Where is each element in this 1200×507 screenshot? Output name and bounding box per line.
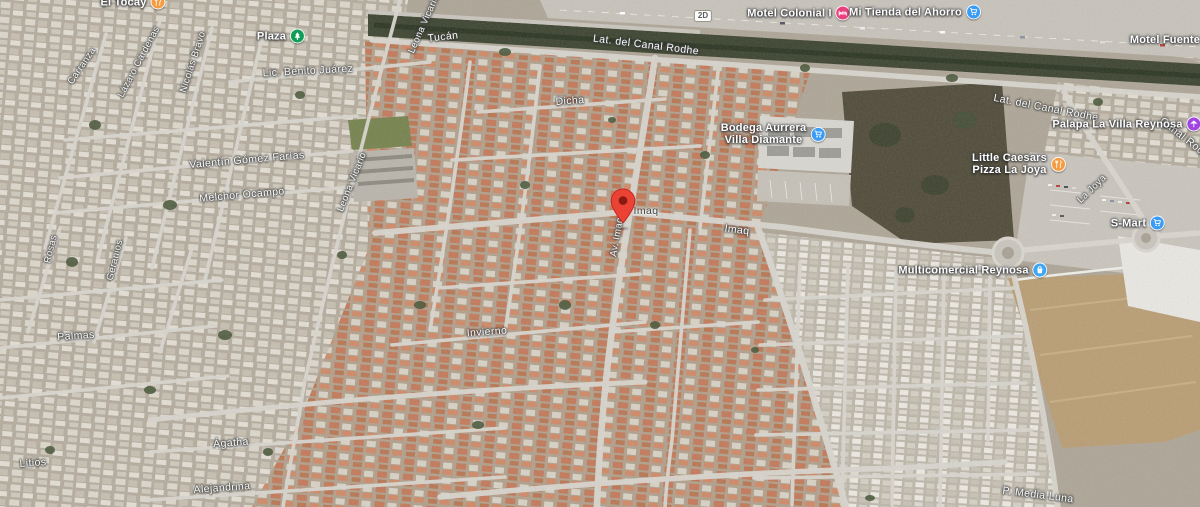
poi-plaza[interactable]: Plaza xyxy=(257,29,305,44)
poi-label: Plaza xyxy=(257,30,286,42)
poi-label-line1: Little Caesars xyxy=(972,152,1047,164)
poi-label: Multicomercial Reynosa xyxy=(898,264,1028,276)
palapa-icon[interactable] xyxy=(1187,117,1200,132)
restaurant-icon[interactable] xyxy=(151,0,166,10)
poi-mi-tienda-del-ahorro[interactable]: Mi Tienda del Ahorro xyxy=(849,5,981,20)
poi-little-caesars[interactable]: Little Caesars Pizza La Joya xyxy=(972,152,1066,176)
shopping-cart-icon[interactable] xyxy=(966,5,981,20)
location-pin[interactable] xyxy=(610,188,637,229)
poi-label: Palapa La Villa Reynosa xyxy=(1052,118,1182,130)
shopping-bag-icon[interactable] xyxy=(1033,263,1048,278)
highway-shield: 2D xyxy=(694,10,712,22)
poi-bodega-aurrera[interactable]: Bodega Aurrera Villa Diamante xyxy=(721,122,826,146)
park-tree-icon[interactable] xyxy=(290,29,305,44)
poi-multicomercial-reynosa[interactable]: Multicomercial Reynosa xyxy=(898,263,1047,278)
poi-label: Motel Fuente xyxy=(1130,34,1200,46)
pin-shadow xyxy=(616,226,630,231)
poi-smart[interactable]: S-Mart xyxy=(1111,216,1165,231)
restaurant-icon[interactable] xyxy=(1051,157,1066,172)
poi-label: Motel Colonial I xyxy=(747,7,831,19)
poi-label: El Tocay xyxy=(100,0,146,8)
poi-label-line2: Villa Diamante xyxy=(725,134,803,146)
poi-motel-fuente[interactable]: Motel Fuente xyxy=(1130,34,1200,46)
poi-motel-colonial[interactable]: Motel Colonial I xyxy=(747,6,850,21)
shopping-cart-icon[interactable] xyxy=(810,127,825,142)
poi-el-tocay[interactable]: El Tocay xyxy=(100,0,165,10)
red-pin-icon xyxy=(610,188,637,224)
poi-label-line1: Bodega Aurrera xyxy=(721,122,807,134)
shopping-cart-icon[interactable] xyxy=(1150,216,1165,231)
poi-label: S-Mart xyxy=(1111,217,1146,229)
satellite-imagery xyxy=(0,0,1200,507)
poi-label: Little Caesars Pizza La Joya xyxy=(972,152,1047,176)
poi-label: Mi Tienda del Ahorro xyxy=(849,6,962,18)
poi-palapa-la-villa-reynosa[interactable]: Palapa La Villa Reynosa xyxy=(1052,117,1200,132)
poi-label: Bodega Aurrera Villa Diamante xyxy=(721,122,807,146)
satellite-map-canvas[interactable]: Lic. Benito Juárez Lázaro Cárdenas Nicol… xyxy=(0,0,1200,507)
poi-label-line2: Pizza La Joya xyxy=(972,164,1046,176)
